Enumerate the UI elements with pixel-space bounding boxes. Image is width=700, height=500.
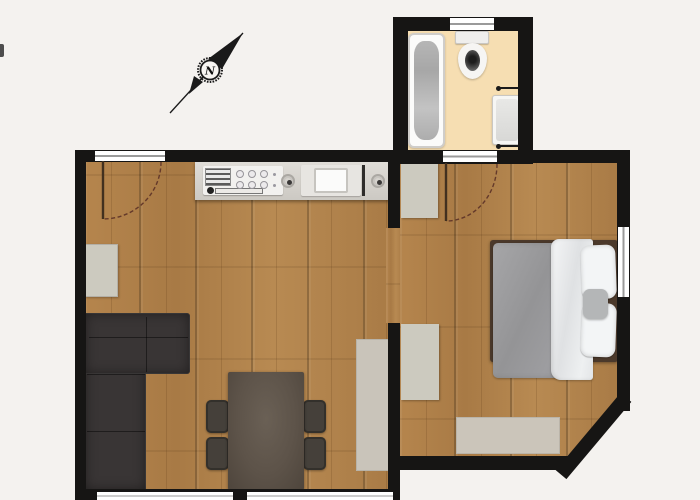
burner-icon xyxy=(260,181,268,189)
bath-faucet-icon xyxy=(0,44,4,57)
burner-icon xyxy=(273,184,276,187)
living-room-window xyxy=(247,492,393,500)
towel-rail-end xyxy=(496,144,501,149)
hob-ring-center xyxy=(287,180,292,185)
hob-ring-center xyxy=(377,180,382,185)
dining-chair xyxy=(206,400,229,433)
wall-bathroom-right xyxy=(518,17,533,163)
toilet-bowl-icon xyxy=(465,50,480,71)
compass: N xyxy=(160,18,255,123)
bathtub-basin xyxy=(414,41,439,140)
sideboard xyxy=(84,244,118,297)
bed-cushion xyxy=(583,289,608,319)
washbasin-basin xyxy=(496,99,518,141)
wall-left xyxy=(75,150,86,500)
sofa-section-horizontal xyxy=(85,313,190,374)
bedroom-window xyxy=(618,227,629,297)
wall-bathroom-left xyxy=(393,17,408,164)
sofa-seam xyxy=(87,374,145,375)
burner-icon xyxy=(273,173,276,176)
cooktop-knob-icon xyxy=(207,187,214,194)
burner-icon xyxy=(236,170,244,178)
compass-north-label: N xyxy=(204,65,216,78)
living-room-window xyxy=(97,492,233,500)
cooktop xyxy=(203,166,283,195)
wardrobe xyxy=(401,162,438,218)
wall-divider-bottom xyxy=(388,323,400,500)
sofa-seam xyxy=(146,317,147,372)
cooktop-grill-icon xyxy=(205,168,231,186)
wall-top-bedroom xyxy=(533,150,630,163)
dining-chair xyxy=(206,437,229,470)
burner-icon xyxy=(248,181,256,189)
sofa-seam xyxy=(89,337,188,338)
wall-divider-top xyxy=(388,160,400,228)
dining-table xyxy=(228,372,304,490)
floor-plan: N xyxy=(0,0,700,500)
counter-divider xyxy=(362,165,365,196)
dining-chair xyxy=(303,400,326,433)
bedroom-rug xyxy=(456,417,560,454)
kitchen-sink xyxy=(301,165,361,196)
passage-floor xyxy=(386,228,402,323)
burner-icon xyxy=(248,170,256,178)
living-room-rug xyxy=(356,339,390,471)
wall-bottom-bedroom xyxy=(395,456,570,470)
bathroom-window xyxy=(450,18,494,30)
dining-chair xyxy=(303,437,326,470)
kitchen-counter xyxy=(195,161,390,200)
burner-icon xyxy=(236,181,244,189)
corner-sofa xyxy=(85,313,190,490)
towel-rail-end xyxy=(496,86,501,91)
hob-ring-icon xyxy=(281,174,295,188)
sink-basin xyxy=(314,168,348,193)
hob-ring-icon xyxy=(371,174,385,188)
burner-icon xyxy=(260,170,268,178)
entrance-door-opening xyxy=(95,151,165,161)
wardrobe xyxy=(401,324,439,400)
bathroom-door-opening xyxy=(443,151,497,162)
sofa-seam xyxy=(87,431,145,432)
bathtub xyxy=(408,33,445,148)
